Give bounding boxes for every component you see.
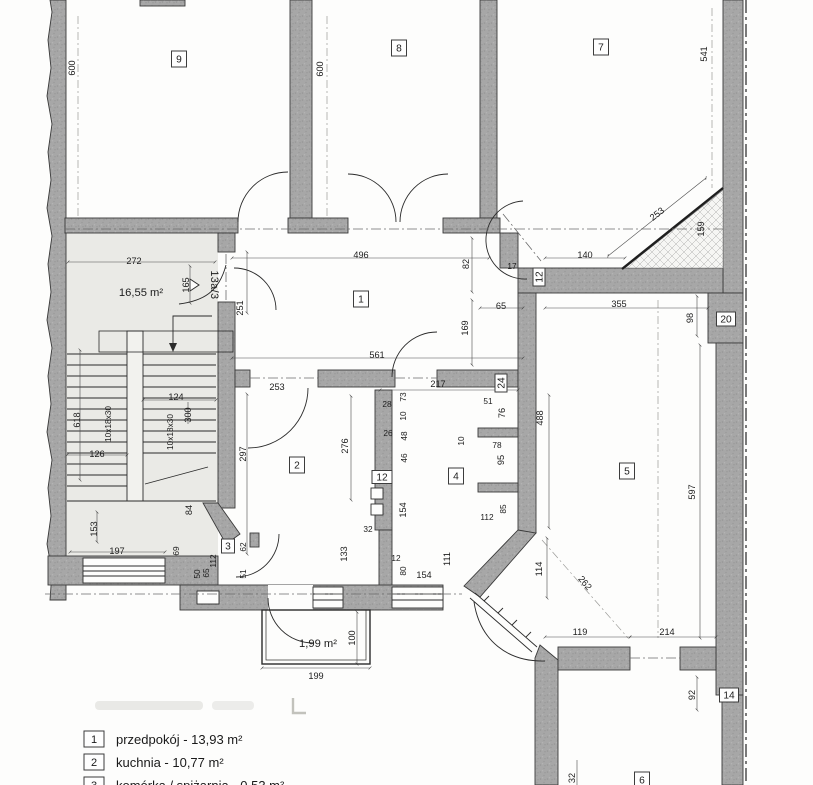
wall-room9-room8	[290, 0, 312, 218]
room-marker-label: 8	[396, 44, 402, 55]
dim-label: 214	[659, 627, 674, 637]
dim-label: 197	[109, 546, 124, 556]
room4-stub-a	[478, 428, 518, 437]
dim-label: 165	[181, 277, 191, 292]
right-outer-wall-upper	[723, 0, 743, 293]
dim-label: 114	[534, 562, 544, 577]
room-marker-label: 7	[598, 43, 604, 54]
hall-bottom-wall-b	[318, 370, 395, 387]
dim-label: 618	[72, 412, 82, 427]
room-marker-label: 3	[225, 542, 231, 553]
room-marker-label: 24	[497, 377, 508, 389]
stair-right-wall-upper	[218, 233, 235, 252]
room4-room5-wall	[518, 293, 536, 533]
small-window	[197, 591, 219, 604]
vent-shaft-a	[371, 488, 383, 499]
dim-label: 276	[340, 438, 350, 453]
hall-top-wall-a	[65, 218, 238, 233]
room-marker-label: 12	[535, 271, 546, 283]
hall-bottom-wall-a	[235, 370, 250, 387]
dim-label: 48	[399, 431, 409, 441]
legend-marker: 3	[91, 780, 97, 785]
dim-label: 17	[507, 261, 517, 271]
dim-label: 85	[498, 504, 508, 514]
dim-label: 50	[192, 569, 202, 579]
stair-right-wall	[218, 302, 235, 508]
dim-label: 119	[573, 627, 588, 637]
dim-label: 488	[535, 410, 545, 425]
room-marker-label: 4	[453, 472, 459, 483]
dim-label: 46	[399, 453, 409, 463]
room7-bottom-wall	[518, 268, 723, 293]
dim-label: 300	[183, 407, 193, 422]
dim-label: 78	[492, 440, 502, 450]
dim-label: 76	[497, 408, 507, 418]
dim-label: 140	[577, 250, 592, 260]
stairwell-window	[83, 558, 165, 583]
room3-stub	[250, 533, 259, 547]
dim-label: 51	[238, 569, 248, 579]
dim-label: 62	[238, 542, 248, 552]
dim-label: 1,99 m²	[299, 638, 337, 650]
dim-label: 355	[611, 299, 626, 309]
dim-label: 133	[339, 546, 349, 561]
room4-window	[392, 587, 443, 608]
dim-label: 80	[398, 566, 408, 576]
room-marker-label: 5	[624, 467, 630, 478]
legend-marker: 2	[91, 757, 97, 769]
room-marker-label: 2	[294, 461, 300, 472]
dim-label: 95	[496, 455, 506, 465]
dim-label: 111	[442, 552, 452, 566]
kitchen-room4-wall-lower	[379, 530, 392, 587]
dim-label: 199	[308, 671, 323, 681]
room-marker-label: 1	[358, 295, 364, 306]
kitchen-window	[313, 587, 343, 608]
dim-label: 541	[699, 46, 709, 61]
dim-label: 26	[383, 428, 393, 438]
dim-label: 65	[496, 301, 506, 311]
dim-label: 82	[461, 259, 471, 269]
dim-label: 69	[171, 546, 181, 556]
vent-shaft-b	[371, 504, 383, 515]
dim-label: 253	[269, 382, 284, 392]
right-outer-wall-lower	[722, 695, 743, 785]
dim-label: 126	[89, 449, 104, 459]
dim-label: 32	[567, 773, 577, 783]
dim-label: 153	[89, 521, 99, 536]
dim-label: 10	[456, 436, 466, 446]
dim-label: 154	[398, 502, 408, 517]
legend-entry: przedpokój - 13,93 m²	[116, 732, 243, 747]
room-marker-label: 20	[720, 315, 732, 326]
dim-label: 297	[238, 446, 248, 461]
room6-left-wall	[535, 645, 558, 785]
dim-label: 28	[382, 399, 392, 409]
dim-label: 112	[208, 554, 218, 568]
dim-label: 51	[483, 396, 493, 406]
room4-stub-b	[478, 483, 518, 492]
dim-label: 169	[460, 320, 470, 335]
dim-label: 496	[353, 250, 368, 260]
dim-label: 32	[363, 524, 373, 534]
dim-label: 561	[369, 350, 384, 360]
legend-entry: komórka / spiżarnia - 0,53 m²	[116, 778, 285, 785]
dim-label: 65	[201, 568, 211, 578]
legend-marker: 1	[91, 734, 97, 746]
dim-label: 10x18x30	[165, 414, 175, 450]
room-marker-label: 9	[176, 55, 182, 66]
dim-label: 10x18x30	[103, 406, 113, 442]
room-marker-label: 6	[639, 776, 645, 785]
dim-label: 159	[696, 221, 706, 236]
dim-label: 124	[168, 392, 183, 402]
balcony-door-opening	[268, 585, 313, 610]
dim-label: 251	[235, 300, 245, 315]
dim-label: 92	[687, 690, 697, 700]
room-marker-label: 12	[376, 473, 388, 484]
dim-label: 272	[126, 256, 141, 266]
dim-label: 12	[391, 553, 401, 563]
hall-top-wall-b	[288, 218, 348, 233]
dim-label: 73	[398, 392, 408, 402]
top-wall-stub	[140, 0, 185, 6]
floor-plan-drawing: 60060054125315914027216,55 m²16513a/3251…	[0, 0, 813, 785]
dim-label: 10	[398, 411, 408, 421]
dim-label: 600	[315, 61, 325, 76]
dim-label: 154	[416, 570, 431, 580]
dim-label: 112	[480, 512, 494, 522]
dim-label: 100	[347, 630, 357, 645]
dim-label: 217	[430, 379, 445, 389]
dim-label: 16,55 m²	[119, 287, 163, 299]
legend-entry: kuchnia - 10,77 m²	[116, 755, 224, 770]
room6-top-wall-b	[680, 647, 716, 670]
dim-label: 13a/3	[208, 270, 220, 299]
room-marker-label: 14	[723, 691, 735, 702]
room6-top-wall-a	[558, 647, 630, 670]
right-outer-wall-mid	[716, 343, 743, 695]
dim-label: 600	[67, 60, 77, 75]
dim-label: 84	[184, 505, 194, 515]
wall-room8-room7	[480, 0, 497, 218]
floor-plan-page: 60060054125315914027216,55 m²16513a/3251…	[0, 0, 813, 785]
dim-label: 597	[687, 484, 697, 499]
dim-label: 98	[685, 313, 695, 323]
